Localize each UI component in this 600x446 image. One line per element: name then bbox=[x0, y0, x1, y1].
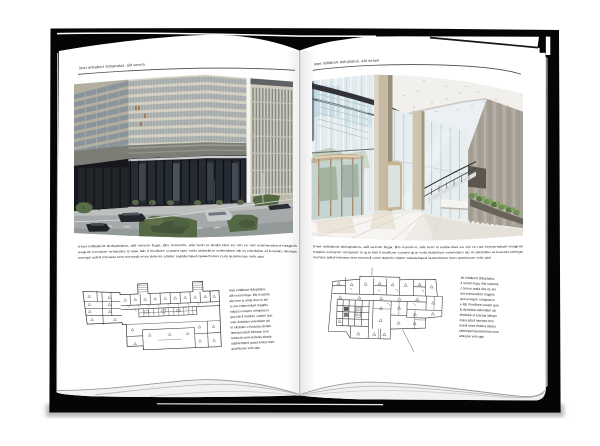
svg-text:amusae volo qau: amusae volo qau bbox=[459, 334, 484, 339]
